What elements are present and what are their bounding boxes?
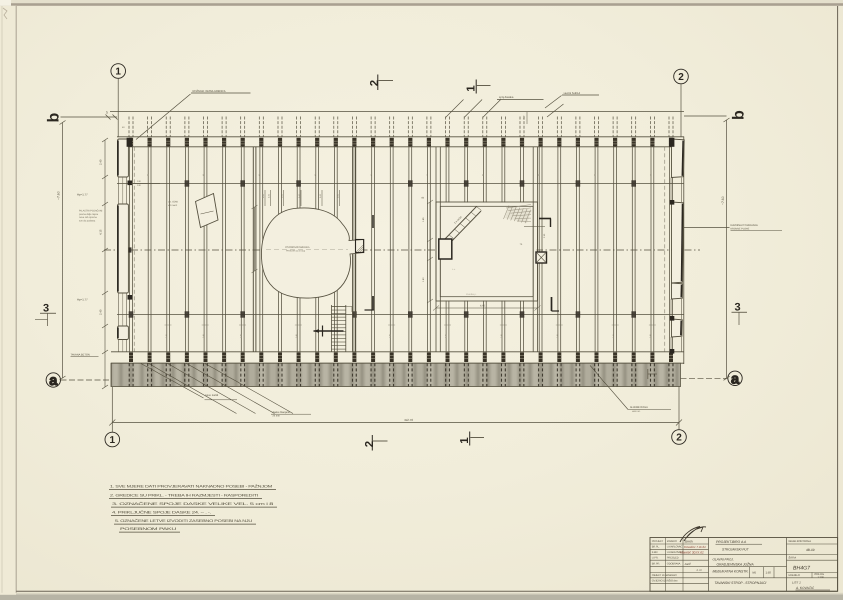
- svg-text:2: 2: [364, 441, 376, 447]
- svg-text:ROŽNJAK VEZNA GREDICA: ROŽNJAK VEZNA GREDICA: [193, 89, 226, 93]
- svg-text:A. KOVAČIĆ: A. KOVAČIĆ: [795, 586, 815, 590]
- svg-text:BR.PR.: BR.PR.: [652, 563, 660, 566]
- svg-text:2: 2: [678, 72, 684, 83]
- svg-text:MJERILO: MJERILO: [789, 574, 800, 577]
- svg-text:~7.60: ~7.60: [721, 196, 725, 205]
- svg-text:STROJARSKI PUT: STROJARSKI PUT: [722, 548, 750, 552]
- svg-text:60: 60: [146, 174, 149, 176]
- svg-text:PREGLED: PREGLED: [667, 556, 679, 559]
- svg-text:BR.PL.: BR.PL.: [652, 546, 660, 549]
- svg-text:OTVORENJE DIMNJAKA: OTVORENJE DIMNJAKA: [285, 246, 310, 249]
- svg-text:GRADJEVINSKA JUŽNA: GRADJEVINSKA JUŽNA: [717, 562, 755, 566]
- svg-text:2.40: 2.40: [612, 334, 615, 338]
- svg-text:2.40: 2.40: [239, 334, 242, 338]
- svg-text:2.40: 2.40: [99, 309, 103, 315]
- svg-text:2.40: 2.40: [99, 159, 103, 165]
- svg-text:RAVNINA OTVARANJA: RAVNINA OTVARANJA: [731, 224, 759, 227]
- svg-text:5: 5: [106, 111, 108, 115]
- svg-text:Matešić 30.IX.61: Matešić 30.IX.61: [680, 551, 704, 555]
- svg-text:MEĐUKATNA KONSTR.: MEĐUKATNA KONSTR.: [713, 570, 749, 574]
- svg-text:3: 3: [43, 303, 49, 315]
- svg-text:TAVANA BETON: TAVANA BETON: [71, 354, 90, 357]
- svg-text:POSEBNOM PAKU: POSEBNOM PAKU: [120, 527, 177, 531]
- svg-text:vidi nacrt: vidi nacrt: [168, 204, 178, 207]
- svg-text:2.40: 2.40: [500, 334, 503, 338]
- svg-text:a: a: [49, 373, 58, 389]
- svg-text:60: 60: [258, 174, 261, 176]
- svg-text:2: 2: [676, 432, 682, 443]
- svg-text:1: 1: [110, 435, 116, 446]
- svg-text:3: 3: [735, 302, 741, 314]
- svg-text:1: 1: [115, 66, 121, 77]
- svg-text:60: 60: [314, 174, 317, 176]
- svg-text:3. OZNAČENE SPOJE DASKE VEL: 3. OZNAČENE SPOJE DASKE VELIKE VEL. 5 cm…: [112, 501, 273, 506]
- svg-text:OBJEKT IZ.NANESAO: OBJEKT IZ.NANESAO: [652, 574, 677, 577]
- svg-text:1:50: 1:50: [766, 570, 772, 574]
- svg-text:1. SVE MJERE DATI PROVJERAVAT: 1. SVE MJERE DATI PROVJERAVATI NAKNADNO …: [110, 484, 272, 489]
- svg-text:24 mm: 24 mm: [273, 415, 280, 418]
- svg-text:ŠIFRA: ŠIFRA: [789, 556, 797, 560]
- svg-text:2.40: 2.40: [165, 334, 168, 338]
- svg-text:izvedba p.: izvedba p.: [466, 293, 477, 296]
- svg-text:ODOBRAVA: ODOBRAVA: [667, 563, 681, 566]
- svg-text:MJ: MJ: [753, 570, 757, 574]
- svg-text:2. GREDICE SU PRIKL. - TREBA: 2. GREDICE SU PRIKL. - TREBA IH RAZMJEST…: [110, 494, 258, 498]
- svg-text:2.40: 2.40: [649, 334, 652, 338]
- svg-text:veznik 5x8/14: veznik 5x8/14: [564, 92, 581, 95]
- svg-text:n.o.: n.o.: [452, 268, 456, 271]
- svg-text:GLAVNI PROJ.: GLAVNI PROJ.: [713, 557, 734, 561]
- svg-text:2.40: 2.40: [388, 334, 391, 338]
- svg-text:2.40: 2.40: [556, 334, 559, 338]
- svg-text:60: 60: [426, 174, 429, 176]
- svg-text:60: 60: [594, 174, 597, 176]
- svg-text:PROJEKT: PROJEKT: [652, 540, 664, 543]
- svg-text:60: 60: [482, 174, 485, 176]
- svg-text:LIST 1: LIST 1: [792, 581, 801, 585]
- svg-text:4B-09: 4B-09: [806, 548, 815, 552]
- svg-text:sve do podesta: sve do podesta: [79, 219, 96, 222]
- svg-text:otv. 45/60: otv. 45/60: [168, 201, 179, 204]
- svg-text:b: b: [46, 113, 63, 123]
- svg-text:2. IV: 2. IV: [696, 569, 703, 572]
- svg-text:~7.60: ~7.60: [57, 191, 61, 200]
- svg-text:U.PR.: U.PR.: [652, 556, 659, 559]
- svg-text:KROVNE PLOHE: KROVNE PLOHE: [731, 228, 750, 231]
- svg-text:Jurić: Jurić: [685, 562, 692, 566]
- svg-text:vezni st.: vezni st.: [632, 410, 641, 413]
- svg-text:4.60: 4.60: [480, 305, 486, 308]
- svg-text:BH4G7: BH4G7: [793, 565, 811, 571]
- svg-text:PROJEKT-BIRO d.d.: PROJEKT-BIRO d.d.: [716, 540, 747, 544]
- svg-text:Hp=1.77: Hp=1.77: [77, 298, 88, 302]
- svg-text:SLJEME ROGA: SLJEME ROGA: [630, 406, 648, 409]
- svg-text:GRAĐ.KONTROLA: GRAĐ.KONTROLA: [789, 540, 812, 543]
- svg-text:60: 60: [202, 174, 205, 176]
- svg-text:4x2.70: 4x2.70: [404, 418, 413, 422]
- svg-text:IZRADIO: IZRADIO: [667, 540, 677, 543]
- svg-text:TAVANSKI STROP - STROPNJACI: TAVANSKI STROP - STROPNJACI: [715, 581, 767, 585]
- svg-text:60: 60: [538, 174, 541, 176]
- svg-text:Kovačev 7.IX.61: Kovačev 7.IX.61: [684, 545, 706, 549]
- svg-text:a: a: [731, 372, 740, 388]
- svg-text:PRODOR xxx m.stup: PRODOR xxx m.stup: [286, 249, 306, 252]
- svg-text:letve 24/48: letve 24/48: [206, 394, 219, 397]
- svg-text:1:100: 1:100: [818, 576, 825, 579]
- svg-text:60: 60: [370, 174, 373, 176]
- svg-text:4. PRIKLJUČNE SPOJE DASKE 2: 4. PRIKLJUČNE SPOJE DASKE 24. -- . -.: [112, 510, 211, 515]
- svg-text:4.15: 4.15: [99, 229, 103, 235]
- svg-text:1.60: 1.60: [422, 277, 425, 282]
- svg-text:2.40: 2.40: [295, 334, 298, 338]
- svg-text:Hp=1.77: Hp=1.77: [77, 193, 88, 197]
- svg-text:U.KARLOVAC: U.KARLOVAC: [667, 546, 683, 549]
- svg-text:K.BR.: K.BR.: [652, 551, 659, 554]
- svg-text:2.40: 2.40: [202, 334, 205, 338]
- svg-text:OVJERIO IZVRŠIO dne: OVJERIO IZVRŠIO dne: [652, 579, 678, 583]
- svg-text:60: 60: [649, 174, 652, 176]
- svg-text:2.40: 2.40: [444, 334, 447, 338]
- svg-text:5. OZNAČENE LETVE IZVODITI ZAS: 5. OZNAČENE LETVE IZVODITI ZASEBNO POSEB…: [115, 518, 253, 523]
- svg-text:1.45: 1.45: [422, 217, 425, 222]
- svg-text:spoj dasaka: spoj dasaka: [499, 96, 514, 99]
- svg-text:b: b: [731, 110, 748, 120]
- svg-text:Smith: Smith: [685, 540, 693, 544]
